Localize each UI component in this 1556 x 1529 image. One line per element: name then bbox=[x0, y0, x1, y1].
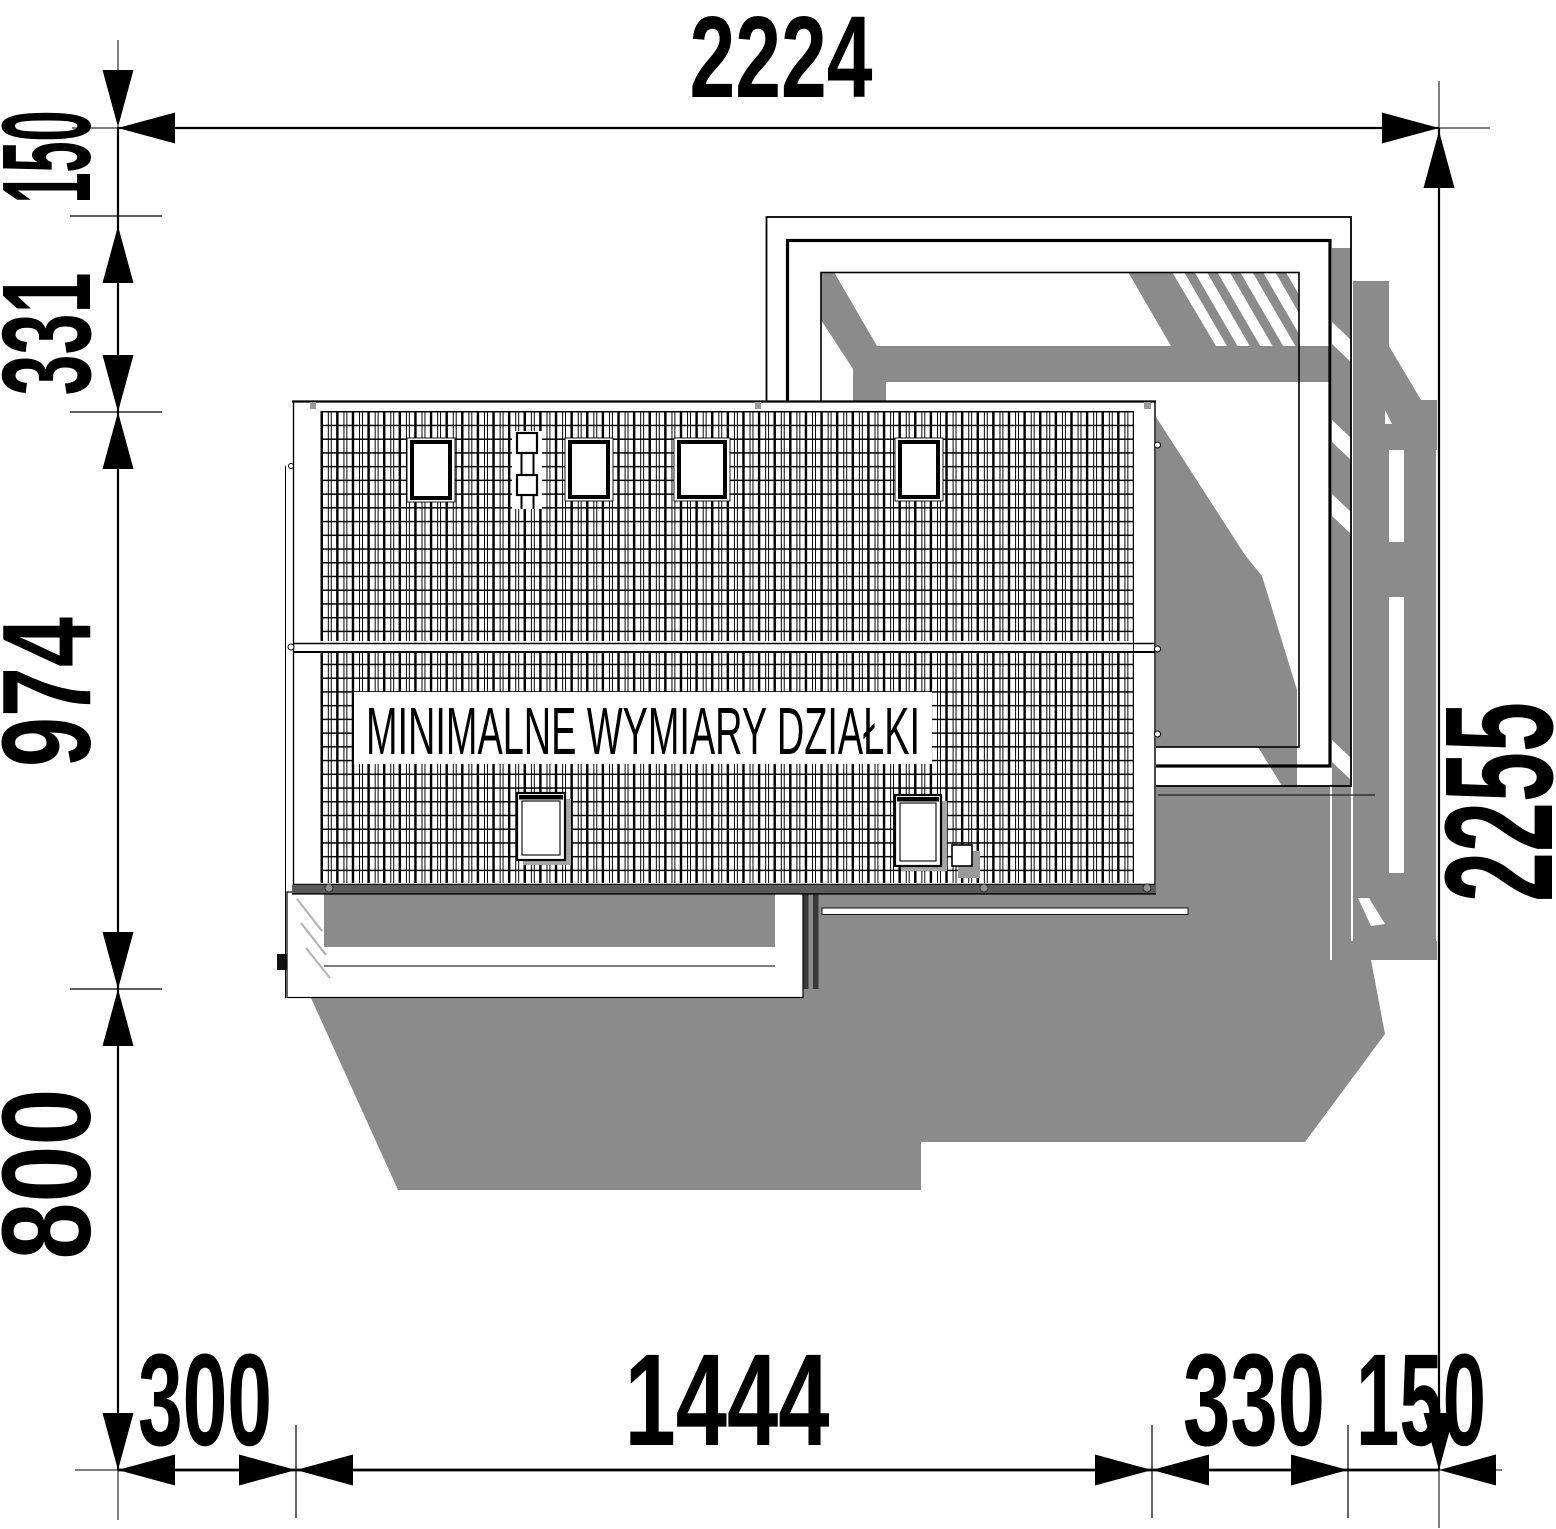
svg-text:MINIMALNE WYMIARY DZIAŁKI: MINIMALNE WYMIARY DZIAŁKI bbox=[366, 694, 920, 769]
svg-text:974: 974 bbox=[0, 617, 117, 767]
svg-text:330: 330 bbox=[1183, 1326, 1325, 1473]
svg-text:2255: 2255 bbox=[1413, 702, 1556, 902]
svg-text:150: 150 bbox=[0, 111, 117, 204]
svg-text:331: 331 bbox=[0, 273, 117, 396]
svg-text:150: 150 bbox=[1356, 1326, 1486, 1473]
svg-text:1444: 1444 bbox=[625, 1326, 830, 1473]
svg-text:800: 800 bbox=[0, 1089, 117, 1260]
svg-text:2224: 2224 bbox=[690, 0, 873, 122]
svg-text:300: 300 bbox=[138, 1326, 272, 1473]
